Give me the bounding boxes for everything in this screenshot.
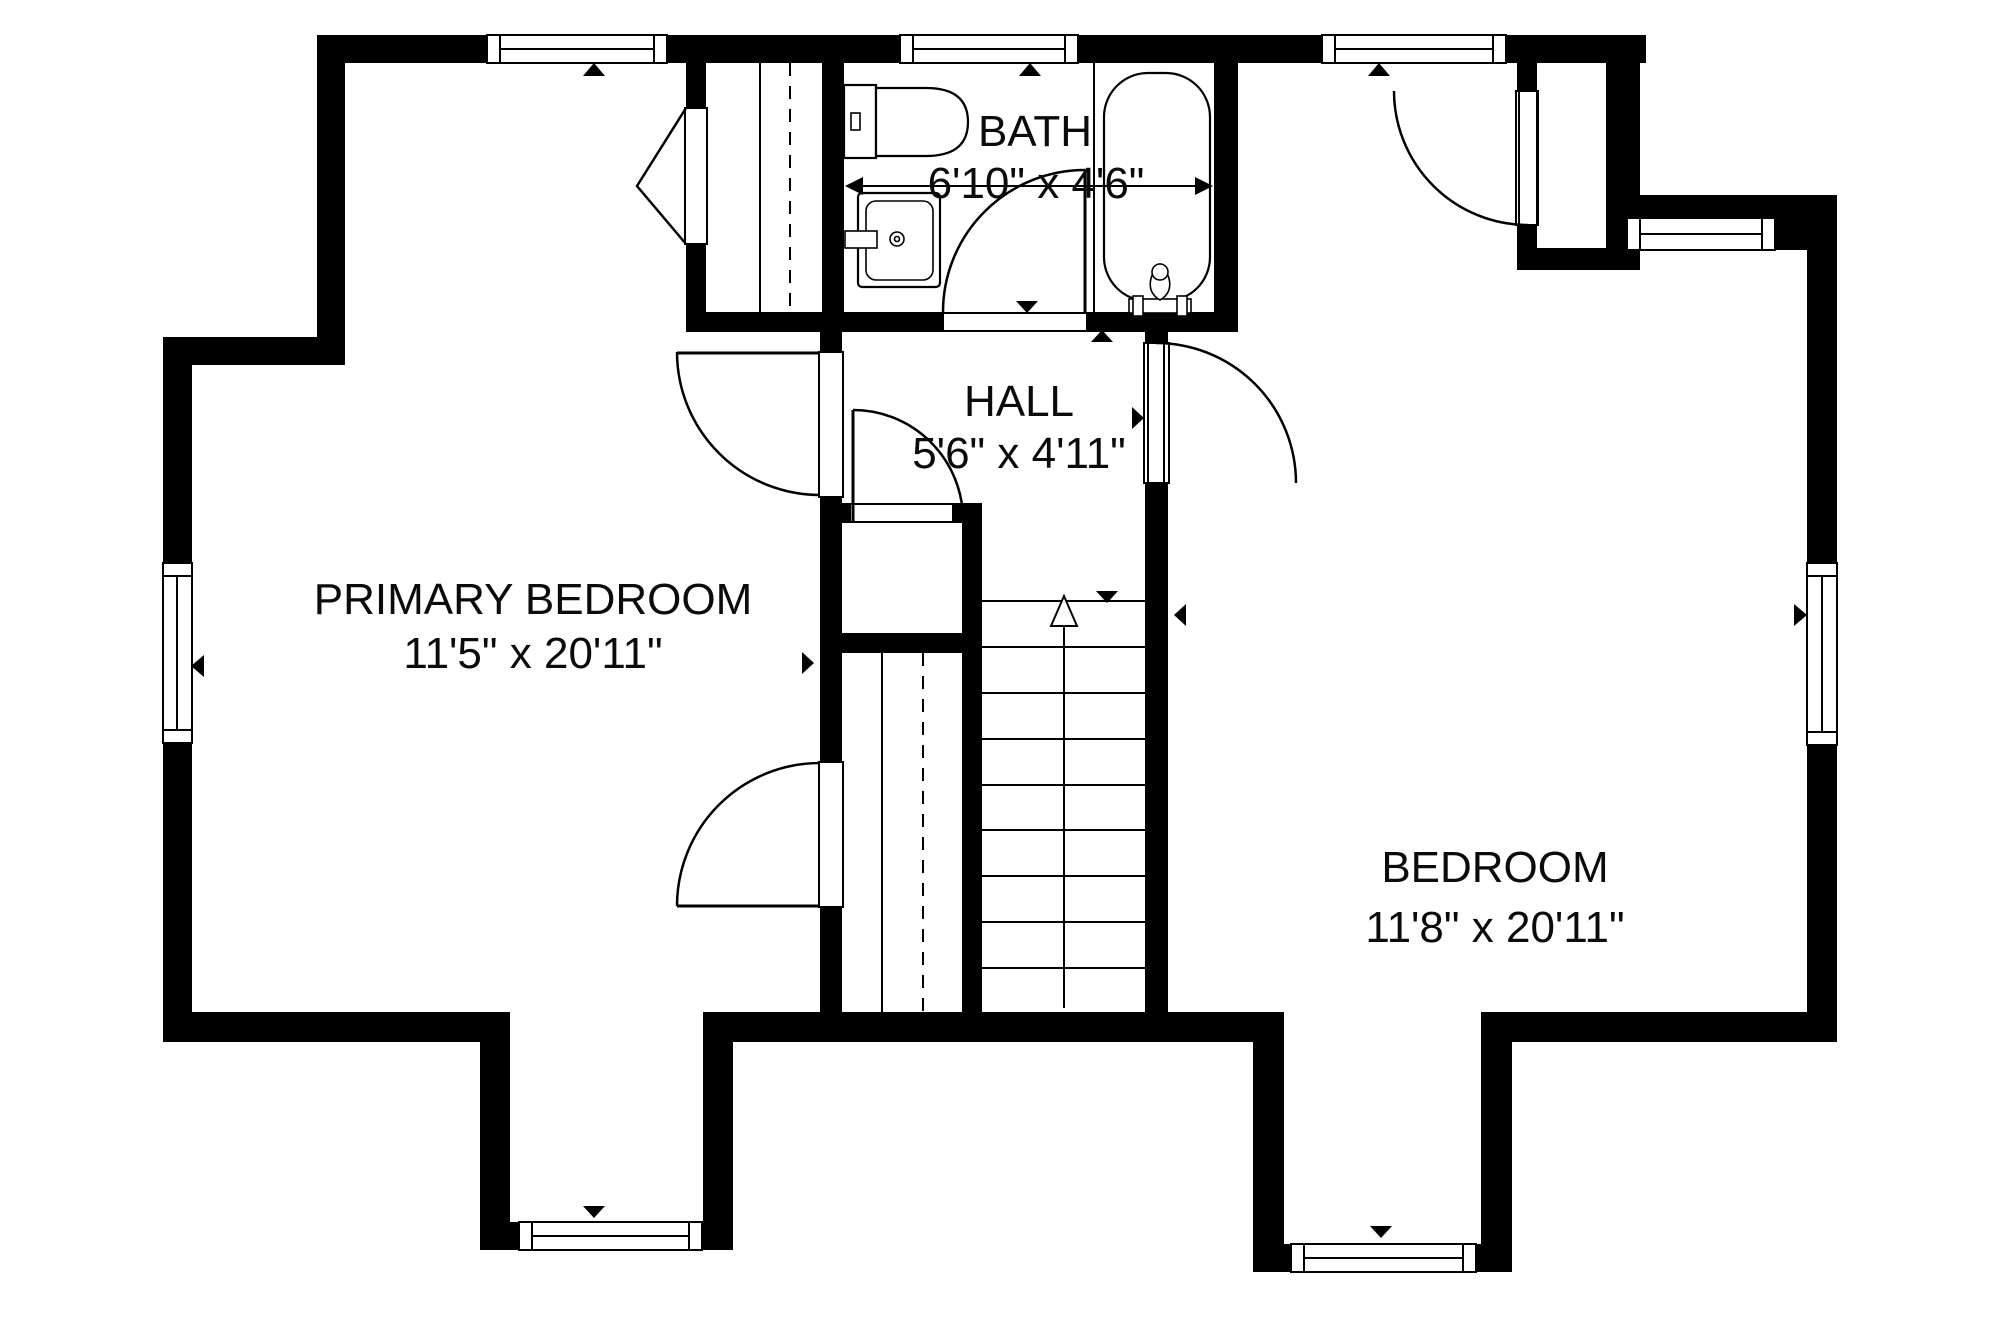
bedroom-closet-left-wall-top <box>1517 63 1537 91</box>
bath-block-bottom-wall-a <box>686 312 943 332</box>
window-bumpout1 <box>519 1222 702 1250</box>
bumpout2-left-wall <box>1253 1012 1284 1272</box>
closet-bath-divider-wall <box>822 63 844 312</box>
primary-bedroom-dims: 11'5" x 20'11" <box>403 629 662 678</box>
window-tr-step <box>1627 218 1775 250</box>
wall-top-c <box>1078 35 1322 63</box>
bath-dims: 6'10" x 4'6" <box>928 159 1145 208</box>
window-right-wall <box>1807 563 1837 745</box>
bumpout1-right-wall <box>703 1012 733 1250</box>
stairs-left-wall <box>962 653 982 1012</box>
wall-nw-step-vertical <box>317 35 345 365</box>
linen-closet-right-wall <box>962 503 982 653</box>
primary-bedroom-label: PRIMARY BEDROOM <box>314 575 752 624</box>
hall-label: HALL <box>964 377 1074 426</box>
wall-bottom-b <box>703 1012 1253 1042</box>
wall-bottom-a <box>163 1012 510 1042</box>
center-wall-seg2 <box>820 497 842 762</box>
toilet <box>844 85 968 158</box>
wall-top-b <box>667 35 900 63</box>
window-bumpout2 <box>1291 1244 1476 1272</box>
closet-upper-left-wall-bottom <box>686 244 706 312</box>
sink <box>845 193 940 287</box>
wall-bottom-c <box>1481 1012 1837 1042</box>
floorplan-canvas: PRIMARY BEDROOM 11'5" x 20'11" BATH 6'10… <box>0 0 2000 1330</box>
bedroom-dims: 11'8" x 20'11" <box>1365 903 1624 952</box>
stairs-right-wall <box>1145 483 1168 1012</box>
bumpout2-right-wall <box>1481 1012 1512 1272</box>
center-wall-seg1 <box>820 332 842 352</box>
tub-right-wall <box>1214 63 1238 332</box>
hall-dims: 5'6" x 4'11" <box>912 429 1126 478</box>
linen-closet-bottom-wall <box>840 633 982 653</box>
floorplan-svg: PRIMARY BEDROOM 11'5" x 20'11" BATH 6'10… <box>0 0 2000 1330</box>
window-top-bath <box>900 35 1078 63</box>
hall-south-wall-left <box>840 503 850 523</box>
bath-label: BATH <box>978 107 1092 156</box>
closet-upper-left-wall-top <box>686 63 706 108</box>
window-top-right <box>1322 35 1506 63</box>
bedroom-label: BEDROOM <box>1381 843 1608 892</box>
window-left-wall <box>163 563 192 743</box>
bedroom-closet-bottom-wall <box>1517 248 1640 270</box>
stairs-right-wall-top <box>1145 332 1168 343</box>
window-top-left <box>487 35 667 63</box>
bumpout1-left-wall <box>480 1012 510 1250</box>
center-wall-seg3 <box>820 907 842 1012</box>
